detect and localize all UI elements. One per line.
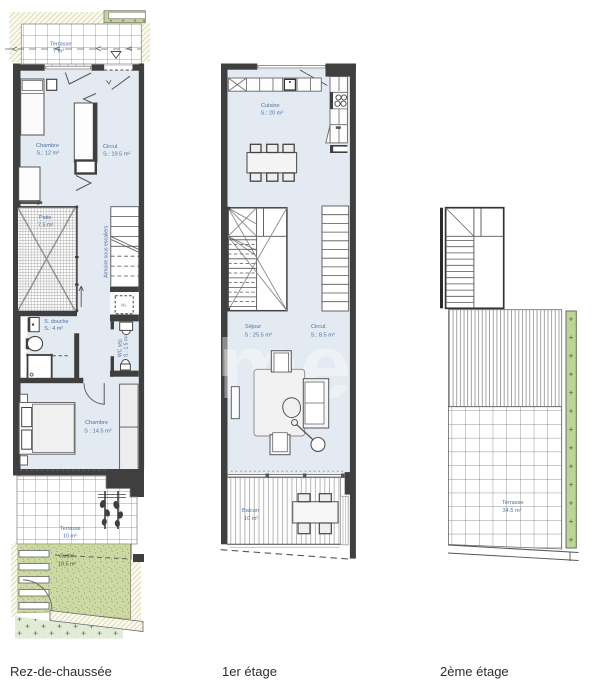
svg-text:S : 14.5 m²: S : 14.5 m²	[84, 429, 111, 435]
svg-text:S.: 1.5 m²: S.: 1.5 m²	[124, 335, 130, 357]
svg-text:S.: 19.5 m²: S.: 19.5 m²	[103, 152, 130, 158]
svg-text:Rez-de-chaussée: Rez-de-chaussée	[10, 664, 112, 679]
svg-text:10 m²: 10 m²	[63, 534, 77, 540]
svg-text:2ème étage: 2ème étage	[440, 664, 509, 679]
svg-text:Terrasse: Terrasse	[60, 526, 81, 532]
svg-text:7.5 m²: 7.5 m²	[38, 223, 53, 229]
svg-text:S.: 20 m²: S.: 20 m²	[261, 111, 284, 117]
svg-text:S.: 12 m²: S.: 12 m²	[37, 151, 60, 157]
svg-text:10.5 m²: 10.5 m²	[58, 562, 76, 568]
svg-text:Balcon: Balcon	[242, 508, 259, 514]
svg-text:ML: ML	[121, 303, 127, 308]
svg-text:7 m²: 7 m²	[53, 49, 64, 55]
svg-text:Circul.: Circul.	[103, 144, 119, 150]
svg-text:Cuisine: Cuisine	[261, 103, 280, 109]
svg-text:Terrasse: Terrasse	[50, 42, 71, 48]
svg-text:10 m²: 10 m²	[244, 516, 258, 522]
svg-text:Chambre: Chambre	[36, 143, 59, 149]
svg-text:Jardin: Jardin	[59, 554, 74, 560]
svg-text:S. douche: S. douche	[44, 319, 68, 325]
svg-text:1er étage: 1er étage	[222, 664, 277, 679]
svg-text:Chambre: Chambre	[85, 420, 108, 426]
svg-text:34.5 m²: 34.5 m²	[503, 508, 522, 514]
svg-text:S.: 4 m²: S.: 4 m²	[44, 326, 63, 332]
svg-text:Terrasse: Terrasse	[502, 500, 523, 506]
svg-text:Patio: Patio	[39, 215, 51, 221]
svg-text:Armoire sous escaliers: Armoire sous escaliers	[104, 225, 110, 278]
